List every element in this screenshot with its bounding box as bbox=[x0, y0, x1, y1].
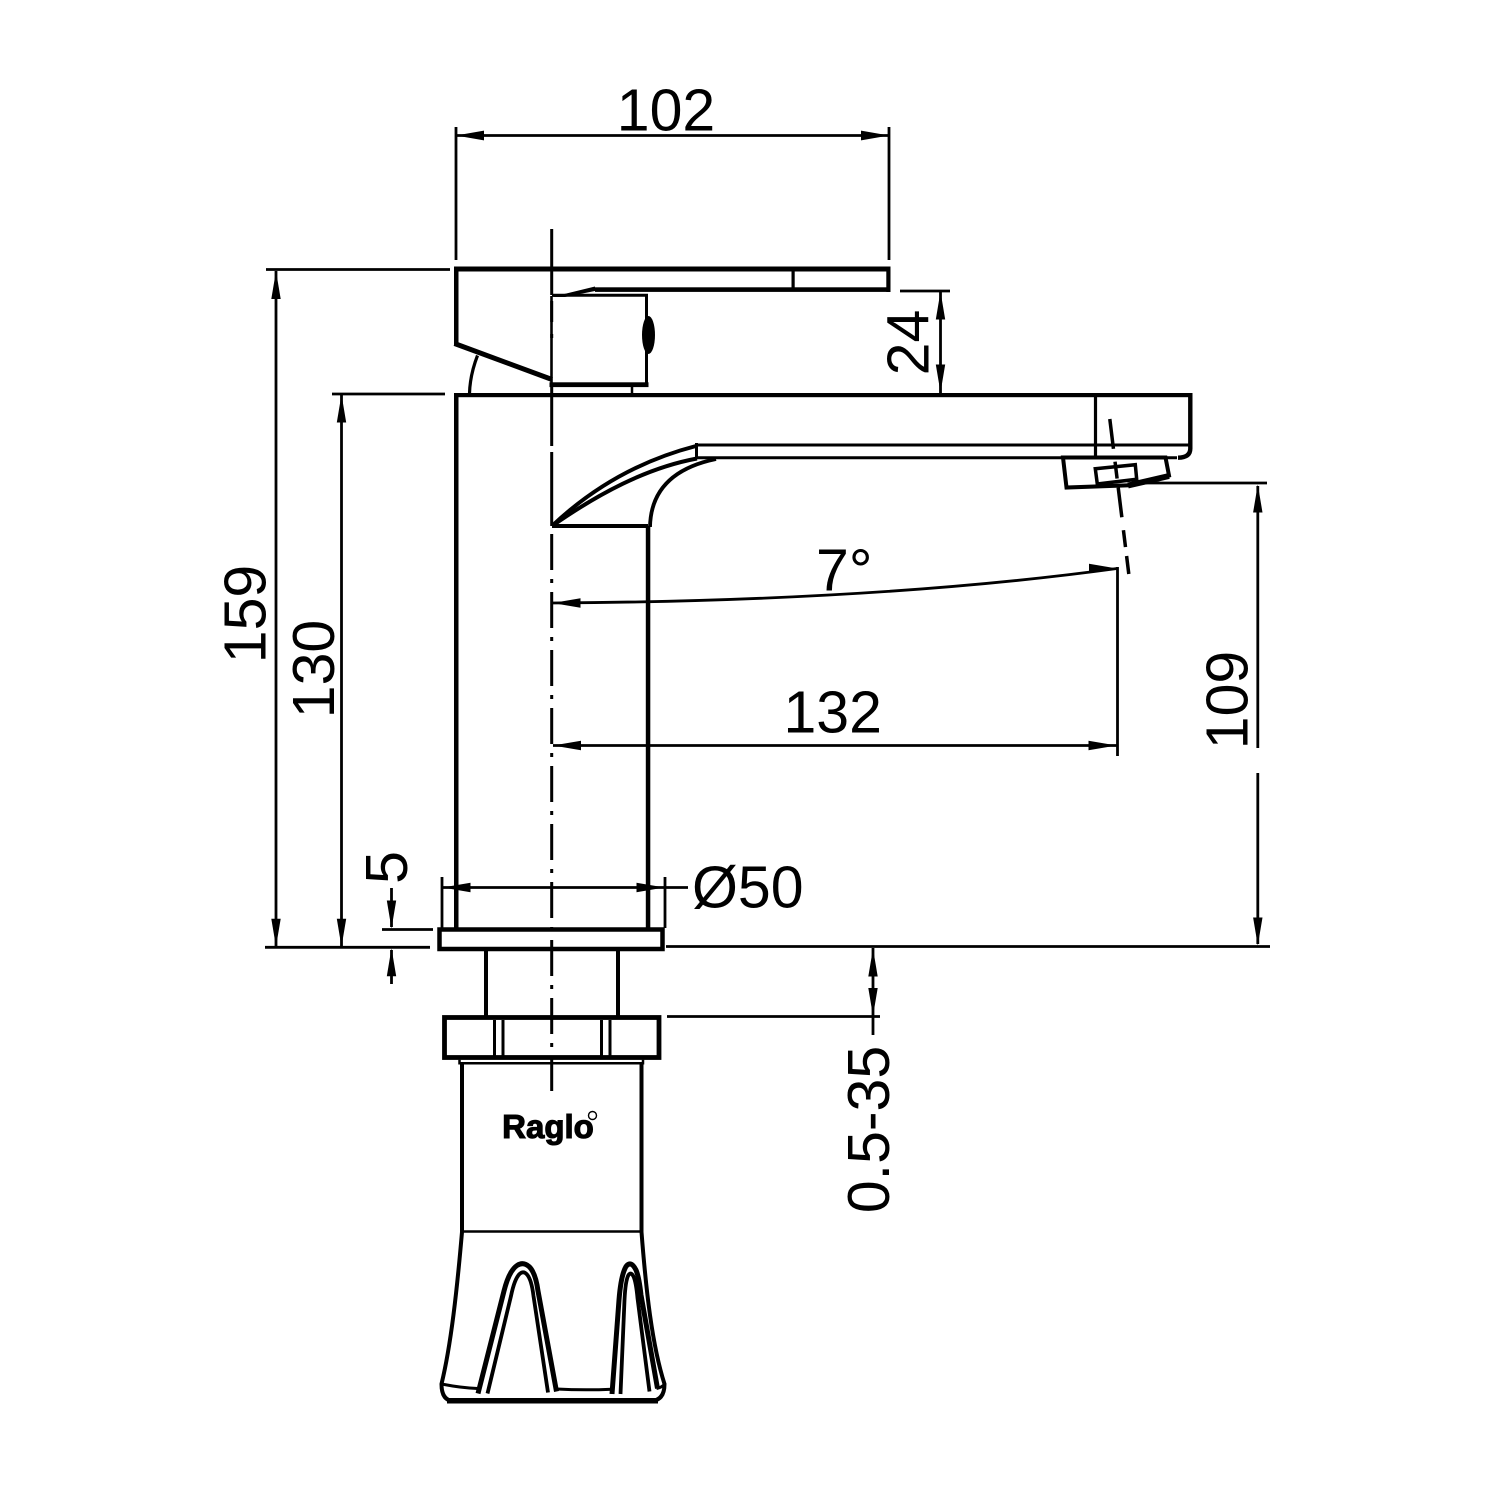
svg-text:159: 159 bbox=[213, 565, 279, 663]
svg-text:7°: 7° bbox=[816, 538, 872, 604]
svg-text:109: 109 bbox=[1195, 651, 1261, 749]
svg-text:24: 24 bbox=[876, 310, 942, 376]
svg-text:Raglo: Raglo bbox=[502, 1108, 594, 1145]
svg-text:130: 130 bbox=[281, 620, 347, 718]
svg-text:5: 5 bbox=[354, 851, 420, 884]
svg-text:0.5-35: 0.5-35 bbox=[836, 1046, 902, 1213]
svg-text:132: 132 bbox=[783, 680, 881, 746]
svg-text:102: 102 bbox=[617, 78, 715, 144]
svg-text:Ø50: Ø50 bbox=[692, 855, 804, 921]
